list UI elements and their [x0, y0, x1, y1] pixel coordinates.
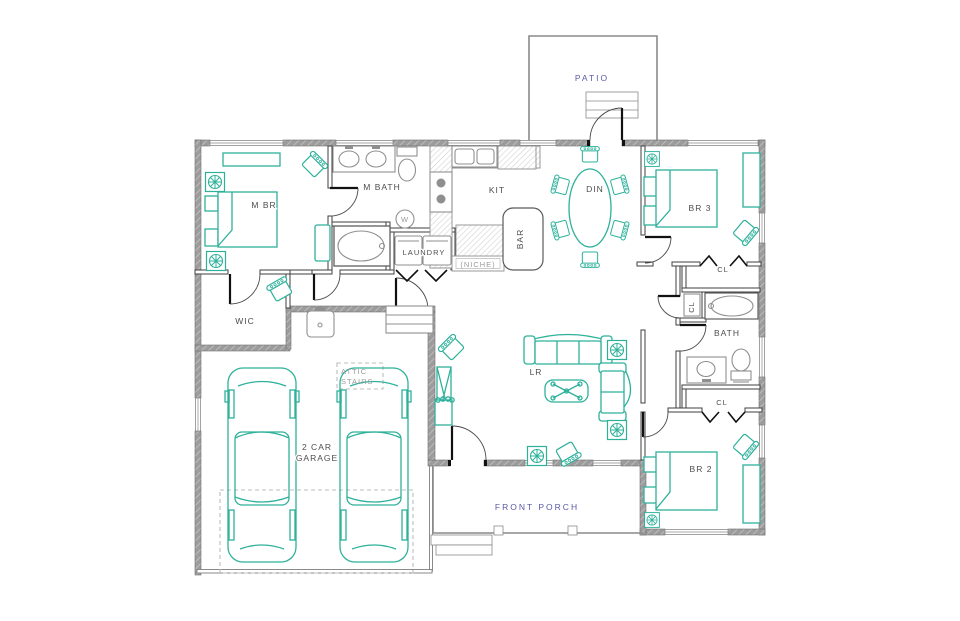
double-vanity: [333, 146, 395, 172]
dining-chair-icon: [581, 252, 600, 267]
master-suite-hall-door: [314, 274, 340, 300]
plant-icon: [608, 421, 627, 440]
br2-door: [643, 412, 668, 437]
refrigerator: [498, 146, 536, 169]
master-toilet: [397, 147, 417, 181]
window: [760, 425, 765, 458]
dining-table: [569, 169, 611, 247]
window: [665, 530, 728, 535]
linen-closet-door: [658, 296, 680, 318]
bedroom-3: [644, 152, 760, 247]
label-bedroom-2: BR 2: [690, 464, 713, 474]
stove: [430, 172, 452, 212]
hall-tub: [705, 293, 758, 319]
utility-sink: [307, 307, 334, 337]
garage-entry-door: [396, 278, 428, 310]
dining-chair-icon: [551, 218, 571, 240]
hall-vanity: [687, 357, 726, 383]
window: [760, 213, 765, 243]
label-attic-line1: ATTIC: [341, 367, 367, 376]
label-master-bath: M BATH: [363, 182, 400, 192]
plant-icon: [207, 252, 226, 271]
patio: [529, 36, 657, 140]
room-labels: PATIO M BR M BATH LAUNDRY (NICHE) KIT BA…: [235, 73, 740, 512]
label-attic-line2: STAIRS: [341, 377, 374, 386]
dining-chair-icon: [581, 147, 600, 162]
label-bar: BAR: [515, 229, 525, 249]
kitchen-island: [456, 225, 504, 256]
plant-icon: [645, 513, 660, 528]
master-bath-door: [330, 188, 358, 216]
label-master-bedroom: M BR: [251, 200, 276, 210]
label-water-heater: W: [401, 215, 409, 224]
garage-door-dashed: [220, 490, 413, 573]
dresser-icon: [743, 465, 760, 523]
kitchen-sink: [452, 146, 497, 167]
coffee-table-icon: [545, 380, 588, 402]
label-br2-closet: CL: [716, 398, 728, 407]
garage: [225, 306, 433, 562]
sofa-icon: [524, 335, 612, 365]
car-icon: [337, 368, 411, 562]
floor-plan-canvas: PATIO M BR M BATH LAUNDRY (NICHE) KIT BA…: [0, 0, 960, 621]
label-living-room: LR: [530, 367, 543, 377]
laundry-bifold-doors: [396, 270, 447, 281]
window: [448, 141, 500, 146]
window: [196, 398, 201, 431]
porch-step: [431, 535, 492, 545]
window: [688, 141, 758, 146]
label-laundry: LAUNDRY: [403, 248, 446, 257]
dresser-icon: [223, 153, 280, 166]
master-tub: [334, 226, 390, 266]
patio-steps: [586, 92, 638, 118]
label-niche: (NICHE): [460, 260, 495, 269]
plant-icon: [608, 341, 627, 360]
label-br3-closet: CL: [717, 265, 729, 274]
plant-icon: [645, 152, 660, 167]
garage-shelves: [386, 306, 433, 333]
window: [520, 141, 556, 146]
label-kitchen: KIT: [489, 185, 505, 195]
window: [210, 141, 283, 146]
window: [593, 461, 621, 466]
dining-chair-icon: [610, 218, 630, 240]
bench-icon: [315, 225, 330, 261]
chair-icon: [300, 150, 328, 178]
porch-step: [436, 545, 492, 555]
car-icon: [225, 368, 299, 562]
label-patio: PATIO: [575, 73, 609, 83]
window: [760, 337, 765, 377]
hall-toilet: [731, 349, 751, 382]
hall-bath-door: [680, 325, 706, 351]
dining-chair-icon: [551, 175, 571, 197]
wic-door: [230, 274, 260, 304]
window: [336, 141, 393, 146]
dresser-icon: [743, 153, 760, 207]
label-dining: DIN: [586, 184, 604, 194]
chair-icon: [732, 218, 760, 246]
br2-closet-bifold-doors: [702, 412, 745, 422]
label-linen-closet: CL: [687, 301, 696, 313]
plant-icon: [206, 173, 225, 192]
entry-plant-table: [435, 397, 454, 425]
front-door: [448, 426, 487, 466]
loveseat-icon: [599, 363, 631, 421]
bed-icon: [644, 452, 717, 510]
label-garage-line1: 2 CAR: [302, 442, 332, 452]
floor-plan-page: PATIO M BR M BATH LAUNDRY (NICHE) KIT BA…: [0, 0, 960, 621]
dining-room: [551, 147, 630, 268]
bed-icon: [644, 170, 717, 227]
porch-outline: [433, 466, 643, 533]
label-wic: WIC: [235, 316, 255, 326]
chair-icon: [732, 432, 760, 460]
label-garage-line2: GARAGE: [296, 453, 338, 463]
label-bedroom-3: BR 3: [689, 203, 712, 213]
chair-icon: [437, 333, 465, 361]
porch-post: [568, 526, 577, 535]
porch-post: [494, 526, 503, 535]
label-hall-bath: BATH: [714, 328, 740, 338]
patio-outline: [529, 36, 657, 140]
br3-door: [645, 237, 671, 263]
dining-chair-icon: [610, 175, 630, 197]
master-bedroom: [205, 150, 330, 302]
plant-icon: [528, 447, 547, 466]
living-room: [435, 333, 631, 467]
bedroom-2: [644, 432, 760, 527]
label-front-porch: FRONT PORCH: [495, 502, 579, 512]
